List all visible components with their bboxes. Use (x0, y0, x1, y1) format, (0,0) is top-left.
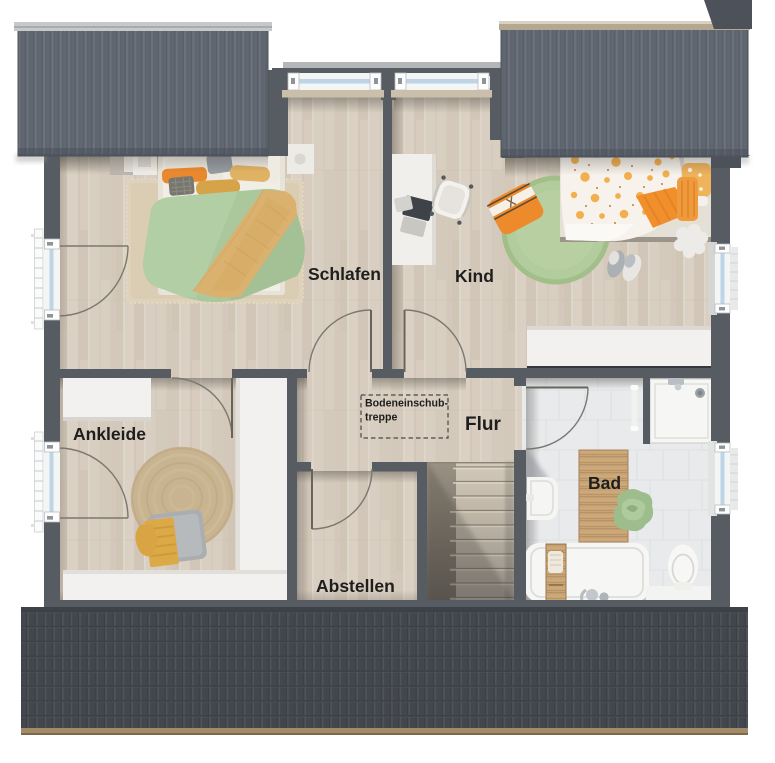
svg-text:Bodeneinschub-: Bodeneinschub- (365, 398, 448, 410)
svg-text:treppe: treppe (365, 412, 397, 424)
svg-text:Flur: Flur (465, 414, 501, 435)
svg-text:Ankleide: Ankleide (73, 424, 146, 444)
svg-text:Kind: Kind (455, 266, 494, 286)
svg-text:Bad: Bad (588, 473, 621, 493)
svg-text:Abstellen: Abstellen (316, 576, 395, 596)
svg-text:Schlafen: Schlafen (308, 264, 381, 284)
